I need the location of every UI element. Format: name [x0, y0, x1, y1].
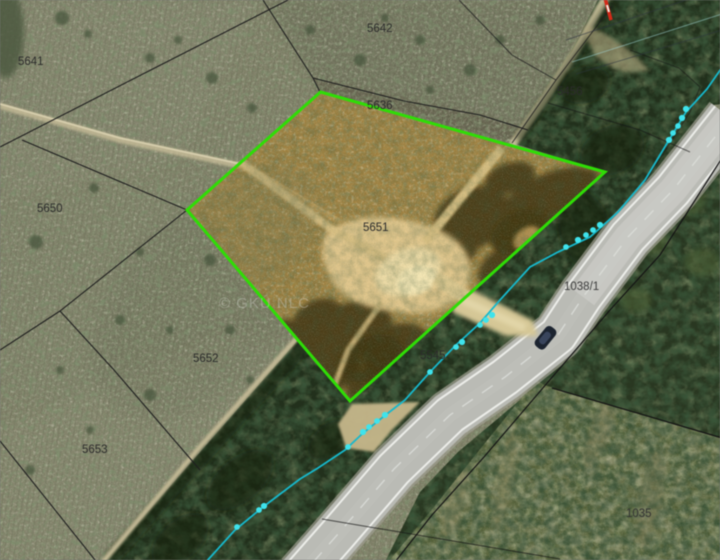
svg-text:1038/1: 1038/1	[564, 281, 599, 293]
svg-text:5650: 5650	[37, 203, 63, 215]
svg-text:5641: 5641	[18, 56, 44, 68]
svg-text:5456: 5456	[557, 86, 583, 98]
svg-text:5545: 5545	[420, 350, 446, 362]
svg-text:5652: 5652	[193, 353, 219, 365]
svg-text:5651: 5651	[363, 222, 389, 234]
svg-text:5642: 5642	[367, 23, 393, 35]
svg-text:1035: 1035	[626, 508, 652, 520]
svg-text:5636: 5636	[367, 100, 393, 112]
svg-text:5653: 5653	[82, 444, 108, 456]
svg-text:© GKÚ NLC: © GKÚ NLC	[219, 295, 310, 312]
